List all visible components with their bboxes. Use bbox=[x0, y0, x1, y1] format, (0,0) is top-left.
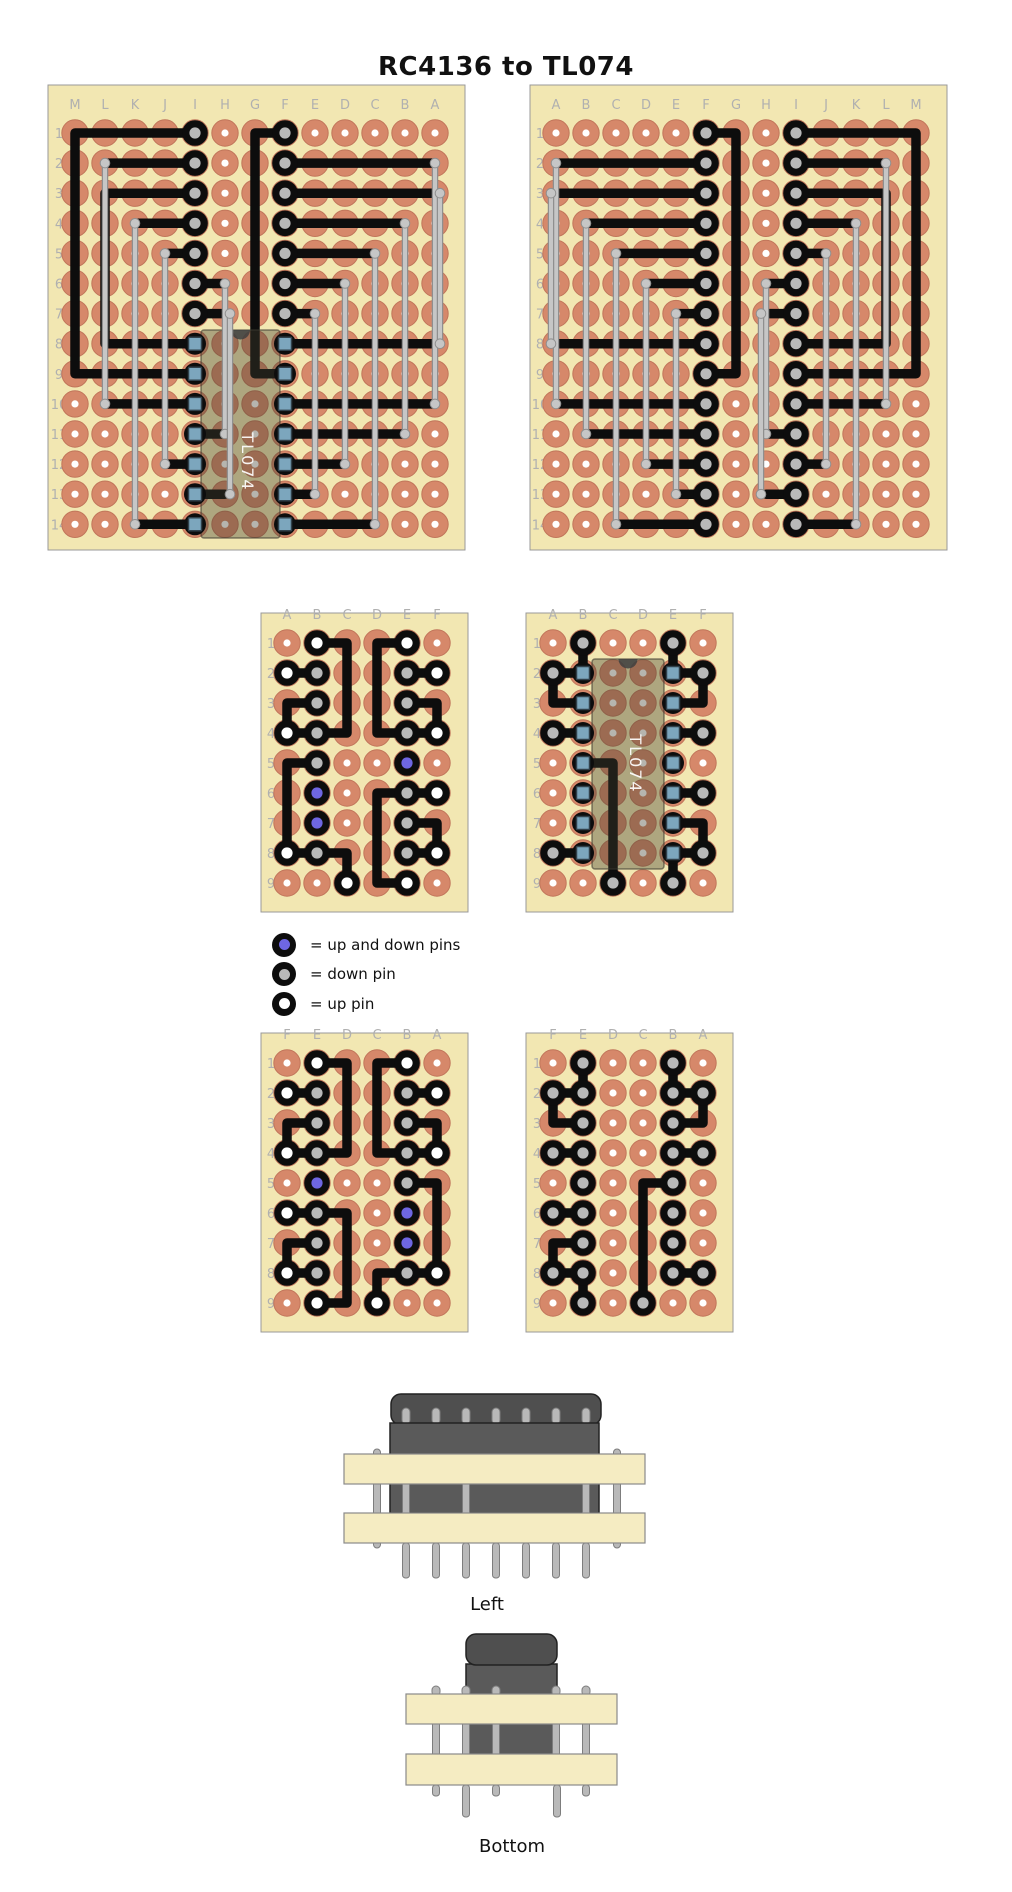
svg-text:B: B bbox=[313, 608, 322, 623]
legend-label: = down pin bbox=[310, 965, 396, 983]
legend-item: = down pin bbox=[272, 960, 460, 990]
svg-text:J: J bbox=[823, 98, 828, 113]
svg-text:A: A bbox=[552, 98, 561, 113]
svg-text:E: E bbox=[672, 98, 680, 113]
ic-pin bbox=[279, 518, 292, 531]
legend-item: = up pin bbox=[272, 989, 460, 1019]
perfboard-top-left: MLKJIHGFEDCBA1234567891011121314TL074 bbox=[48, 85, 465, 550]
up-pin-icon bbox=[272, 992, 296, 1016]
svg-text:I: I bbox=[193, 98, 197, 113]
svg-text:F: F bbox=[702, 98, 709, 113]
svg-text:C: C bbox=[608, 608, 617, 623]
svg-text:F: F bbox=[283, 1028, 290, 1043]
svg-text:L: L bbox=[882, 98, 890, 113]
left-view-caption: Left bbox=[387, 1594, 587, 1615]
ic-pin bbox=[279, 337, 292, 350]
bottom-view-caption: Bottom bbox=[412, 1836, 612, 1857]
down-pin-icon bbox=[272, 962, 296, 986]
svg-text:E: E bbox=[313, 1028, 321, 1043]
svg-text:D: D bbox=[340, 98, 350, 113]
svg-text:B: B bbox=[403, 1028, 412, 1043]
adapter-left-view bbox=[344, 1394, 645, 1578]
svg-text:M: M bbox=[910, 98, 921, 113]
perfboard-bottom-left: FEDCBA123456789 bbox=[261, 1028, 468, 1332]
legend: = up and down pins= down pin= up pin bbox=[272, 930, 460, 1019]
svg-text:K: K bbox=[131, 98, 140, 113]
perfboard-edge bbox=[406, 1754, 617, 1785]
ic-pin bbox=[577, 727, 590, 740]
ic-pin bbox=[189, 518, 202, 531]
svg-text:I: I bbox=[794, 98, 798, 113]
svg-text:D: D bbox=[372, 608, 382, 623]
svg-text:A: A bbox=[433, 1028, 442, 1043]
ic-pin bbox=[577, 667, 590, 680]
svg-text:F: F bbox=[699, 608, 706, 623]
svg-text:D: D bbox=[641, 98, 651, 113]
ic-pin bbox=[577, 817, 590, 830]
svg-text:G: G bbox=[250, 98, 260, 113]
ic-label: TL074 bbox=[626, 733, 645, 793]
svg-text:E: E bbox=[669, 608, 677, 623]
ic-pin bbox=[577, 757, 590, 770]
ic-pin bbox=[577, 697, 590, 710]
ic-pin bbox=[189, 488, 202, 501]
ic-label: TL074 bbox=[238, 431, 257, 491]
ic-pin bbox=[189, 337, 202, 350]
svg-text:C: C bbox=[342, 608, 351, 623]
perfboard-bottom-right: FEDCBA123456789 bbox=[526, 1028, 733, 1332]
svg-text:D: D bbox=[342, 1028, 352, 1043]
svg-text:A: A bbox=[283, 608, 292, 623]
svg-text:K: K bbox=[852, 98, 861, 113]
ic-pin bbox=[667, 727, 680, 740]
perfboard-edge bbox=[406, 1694, 617, 1724]
ic-pin bbox=[189, 367, 202, 380]
ic-pin bbox=[279, 428, 292, 441]
svg-text:A: A bbox=[431, 98, 440, 113]
ic-pin bbox=[667, 757, 680, 770]
ic-pin bbox=[577, 847, 590, 860]
svg-text:B: B bbox=[669, 1028, 678, 1043]
ic-pin bbox=[279, 458, 292, 471]
svg-text:F: F bbox=[433, 608, 440, 623]
svg-text:D: D bbox=[608, 1028, 618, 1043]
svg-text:F: F bbox=[549, 1028, 556, 1043]
svg-text:C: C bbox=[372, 1028, 381, 1043]
svg-text:D: D bbox=[638, 608, 648, 623]
svg-text:E: E bbox=[311, 98, 319, 113]
ic-pin bbox=[667, 847, 680, 860]
svg-text:E: E bbox=[579, 1028, 587, 1043]
svg-text:B: B bbox=[401, 98, 410, 113]
svg-text:C: C bbox=[638, 1028, 647, 1043]
perfboard-middle-left: ABCDEF123456789 bbox=[261, 608, 468, 912]
perfboard-middle-right: ABCDEF123456789TL074 bbox=[526, 608, 733, 912]
adapter-bottom-view bbox=[406, 1634, 617, 1817]
ic-pin bbox=[279, 367, 292, 380]
perfboard-top-right: ABCDEFGHIJKLM1234567891011121314 bbox=[530, 85, 947, 550]
svg-text:J: J bbox=[162, 98, 167, 113]
ic-pin bbox=[577, 787, 590, 800]
svg-text:C: C bbox=[370, 98, 379, 113]
ic-pin bbox=[189, 458, 202, 471]
svg-text:A: A bbox=[699, 1028, 708, 1043]
ic-pin bbox=[667, 667, 680, 680]
svg-text:L: L bbox=[101, 98, 109, 113]
ic-pin bbox=[279, 488, 292, 501]
svg-text:B: B bbox=[579, 608, 588, 623]
ic-pin bbox=[667, 787, 680, 800]
up-down-pin-icon bbox=[272, 933, 296, 957]
ic-pin bbox=[279, 397, 292, 410]
ic-pin bbox=[667, 817, 680, 830]
perfboard-edge bbox=[344, 1513, 645, 1543]
svg-text:H: H bbox=[220, 98, 230, 113]
svg-text:B: B bbox=[582, 98, 591, 113]
svg-text:F: F bbox=[281, 98, 288, 113]
ic-top-body bbox=[466, 1634, 557, 1665]
ic-pin bbox=[189, 428, 202, 441]
svg-text:H: H bbox=[761, 98, 771, 113]
perfboard-edge bbox=[344, 1454, 645, 1484]
svg-text:C: C bbox=[611, 98, 620, 113]
diagram-page: RC4136 to TL074 MLKJIHGFEDCBA12345678910… bbox=[0, 0, 1012, 1892]
ic-pin bbox=[189, 397, 202, 410]
svg-text:E: E bbox=[403, 608, 411, 623]
svg-text:A: A bbox=[549, 608, 558, 623]
legend-label: = up and down pins bbox=[310, 936, 460, 954]
svg-text:M: M bbox=[69, 98, 80, 113]
legend-label: = up pin bbox=[310, 995, 374, 1013]
svg-text:G: G bbox=[731, 98, 741, 113]
legend-item: = up and down pins bbox=[272, 930, 460, 960]
ic-pin bbox=[667, 697, 680, 710]
